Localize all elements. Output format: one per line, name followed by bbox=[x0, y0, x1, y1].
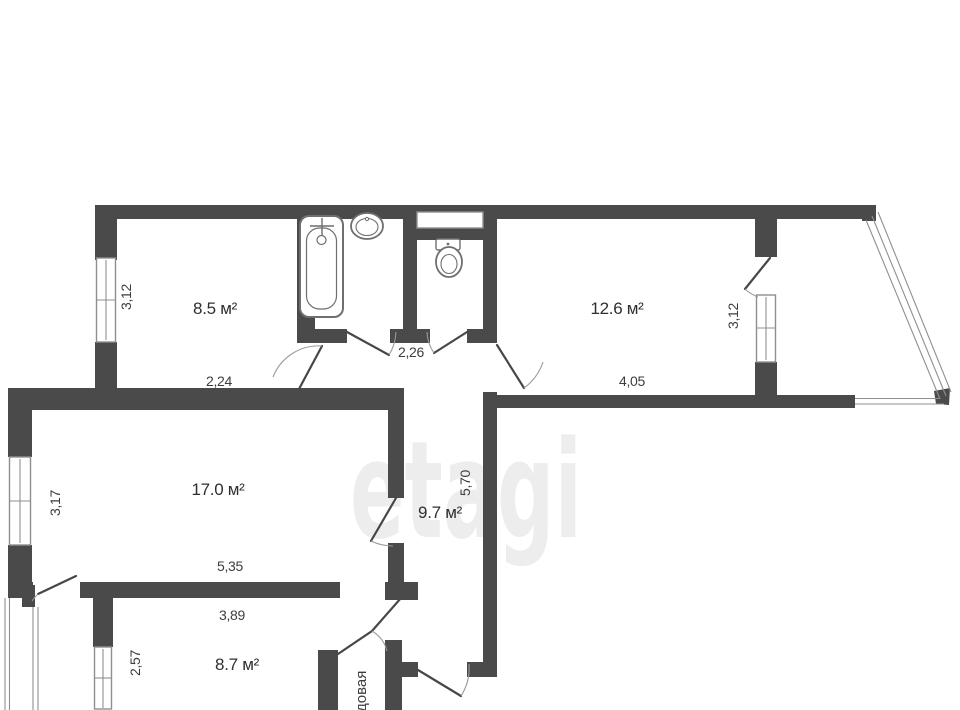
door-balcony-bottom-left bbox=[32, 576, 76, 601]
toilet-icon bbox=[417, 212, 483, 277]
door-room-top-left bbox=[273, 346, 322, 389]
dim-label: 3,12 bbox=[725, 302, 741, 329]
area-label-room-bottom: 8.7 м² bbox=[215, 655, 260, 674]
area-label-room-top-left: 8.5 м² bbox=[193, 299, 238, 318]
dim-label: 3,17 bbox=[47, 489, 63, 516]
floor-plan-page: etagi bbox=[0, 0, 960, 710]
door-wc bbox=[427, 332, 467, 353]
window-room-living bbox=[10, 457, 31, 545]
area-label-room-living: 17.0 м² bbox=[191, 480, 245, 499]
dim-label: 4,05 bbox=[619, 373, 646, 389]
dim-label: 2,24 bbox=[206, 373, 233, 389]
fixtures bbox=[300, 212, 483, 317]
balcony-glazing-bottom-left bbox=[5, 598, 38, 710]
bathtub-icon bbox=[300, 216, 343, 317]
area-label-room-top-right: 12.6 м² bbox=[590, 299, 644, 318]
door-bathroom bbox=[347, 332, 396, 355]
window-room-top-right bbox=[757, 295, 776, 362]
wc-niche bbox=[417, 212, 483, 228]
dim-label: 3,89 bbox=[219, 607, 246, 623]
window-room-bottom bbox=[95, 647, 112, 709]
dim-label: 2,57 bbox=[127, 649, 143, 676]
area-label-hallway: 9.7 м² bbox=[418, 503, 463, 522]
door-balcony-top-right bbox=[745, 258, 770, 297]
floor-plan: etagi bbox=[0, 0, 960, 710]
dim-label: 5,70 bbox=[457, 469, 473, 496]
window-room-top-left bbox=[97, 258, 116, 342]
storage-room-label: довая bbox=[353, 671, 370, 710]
dim-label: 2,26 bbox=[398, 344, 425, 360]
sink-icon bbox=[351, 213, 383, 239]
dim-label: 5,35 bbox=[217, 558, 244, 574]
balcony-glazing-right bbox=[855, 212, 951, 404]
door-entrance bbox=[418, 664, 469, 696]
dim-label: 3,12 bbox=[118, 283, 134, 310]
door-room-top-right bbox=[497, 345, 543, 388]
